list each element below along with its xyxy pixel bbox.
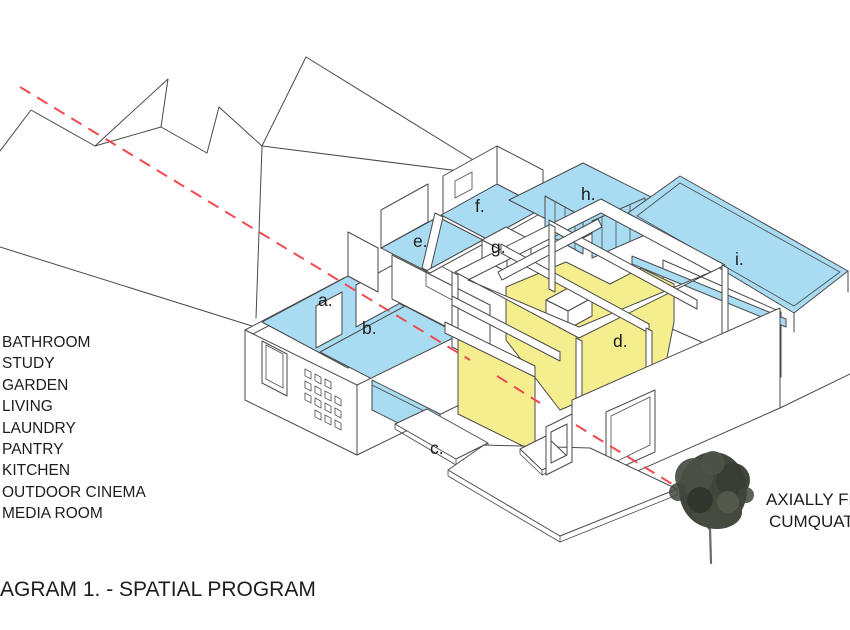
legend-item: LIVING [2, 396, 146, 417]
diagram-caption: AGRAM 1. - SPATIAL PROGRAM [0, 578, 316, 602]
tree-annotation: AXIALLY FR CUMQUAT [766, 489, 850, 533]
legend-item: LAUNDRY [2, 418, 146, 439]
legend-item: OUTDOOR CINEMA [2, 482, 146, 503]
label-room-b: b. [362, 318, 377, 338]
legend-item: PANTRY [2, 439, 146, 460]
legend-item: MEDIA ROOM [2, 503, 146, 524]
label-room-d: d. [613, 331, 628, 351]
roof-eave-left [0, 247, 252, 326]
ground-line [780, 374, 850, 408]
diagram-page: { "diagram": { "caption": "AGRAM 1. - SP… [0, 0, 850, 630]
cumquat-tree [669, 451, 754, 563]
label-room-h: h. [581, 184, 596, 204]
tree-annotation-line1: AXIALLY FR [766, 489, 850, 511]
legend-item: GARDEN [2, 375, 146, 396]
roof-corner-drop [256, 146, 262, 318]
label-room-a: a. [318, 290, 333, 310]
legend-item: KITCHEN [2, 460, 146, 481]
tree-annotation-line2: CUMQUAT [769, 511, 850, 533]
label-room-e: e. [413, 231, 428, 251]
middle-block [381, 146, 547, 273]
roof-ridge [0, 57, 306, 153]
room-legend: BATHROOM STUDY GARDEN LIVING LAUNDRY PAN… [2, 332, 146, 525]
label-room-g: g. [491, 237, 506, 257]
legend-item: BATHROOM [2, 332, 146, 353]
label-room-f: f. [475, 196, 485, 216]
legend-item: STUDY [2, 353, 146, 374]
axonometric-diagram: a. b. c. d. e. f. g. h. i. [0, 0, 850, 630]
roof-edge [306, 57, 499, 176]
label-room-c: c. [430, 438, 444, 458]
label-room-i: i. [735, 249, 744, 269]
pergola-post-m1 [549, 224, 555, 292]
